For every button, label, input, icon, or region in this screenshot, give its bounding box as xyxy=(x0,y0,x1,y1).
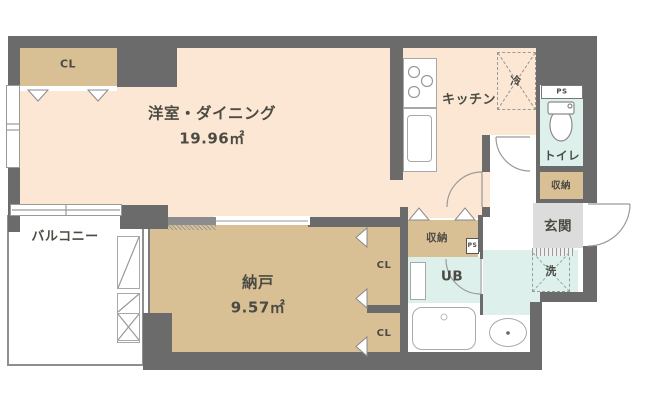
ps-top-label: PS xyxy=(556,89,567,96)
wall-ub-right-a xyxy=(480,250,483,259)
stove-unit xyxy=(403,58,437,108)
kitchen-label: キッチン xyxy=(442,94,496,107)
closet-mid-label: CL xyxy=(377,261,392,271)
closet-low-label: CL xyxy=(377,329,392,339)
wall-topleft-chunk xyxy=(117,48,177,87)
closet-top-label: CL xyxy=(60,59,76,70)
living-name: 洋室・ダイニング xyxy=(148,106,276,122)
wall-storageentry-bottom xyxy=(536,199,583,203)
wall-step-v xyxy=(530,302,542,352)
wall-storagehall-right xyxy=(478,215,483,252)
wall-top xyxy=(8,36,597,48)
washbasin-icon xyxy=(489,318,527,347)
entrance-doorway xyxy=(583,203,597,246)
entrance-step xyxy=(532,248,574,256)
corridor-floor xyxy=(490,135,536,250)
wall-bottom xyxy=(143,352,542,370)
wall-kitchen-divider xyxy=(390,48,403,180)
wall-south-left xyxy=(120,205,168,229)
unit-bath-label: UB xyxy=(441,270,463,284)
kitchen-sink-bowl xyxy=(407,115,432,162)
storage-entry-label: 収納 xyxy=(551,181,571,191)
floor-plan: バルコニー CL 洋室・ダイニング 19.96㎡ キッチン 冷 PS トイレ 収… xyxy=(0,0,645,418)
wall-corridor-kitchen xyxy=(482,135,490,172)
storage-room-area: 9.57㎡ xyxy=(231,301,286,316)
balcony-hatch-box xyxy=(117,313,140,341)
wall-toiletcol-top xyxy=(536,48,583,85)
nando-door-hatch xyxy=(168,225,216,230)
wall-storageentry-left xyxy=(536,166,540,203)
toilet-label: トイレ xyxy=(544,150,580,162)
ps-small-label: PS xyxy=(468,243,478,249)
bathtub-icon xyxy=(412,307,476,350)
washer-label: 洗 xyxy=(545,266,557,277)
wall-step-h xyxy=(540,292,595,302)
balcony-label: バルコニー xyxy=(31,231,98,244)
window-left xyxy=(6,85,20,168)
wall-south-mid xyxy=(308,217,408,227)
wall-right-upper xyxy=(583,36,597,203)
wall-closet-divider xyxy=(367,305,400,313)
wall-column xyxy=(400,207,408,355)
closet-top-door-strip xyxy=(20,86,117,91)
wall-corridor-stub xyxy=(482,207,490,217)
entrance-label: 玄関 xyxy=(544,220,572,234)
nando-sliding-panel xyxy=(168,217,216,225)
storage-room-name: 納戸 xyxy=(242,275,274,291)
wall-storageentry-top xyxy=(536,166,583,172)
storage-hall-label: 収納 xyxy=(426,233,448,244)
wall-toiletcol-left xyxy=(536,48,540,172)
living-area: 19.96㎡ xyxy=(179,132,244,147)
balcony-partition xyxy=(117,236,140,289)
bath-counter xyxy=(410,262,426,300)
fridge-label: 冷 xyxy=(510,76,522,87)
nando-door-track xyxy=(214,216,310,225)
wall-nando-corner xyxy=(143,313,172,352)
balcony-sliding-door xyxy=(10,204,122,216)
wall-ub-right-b xyxy=(480,294,483,315)
corridor-floor-2 xyxy=(483,217,490,250)
